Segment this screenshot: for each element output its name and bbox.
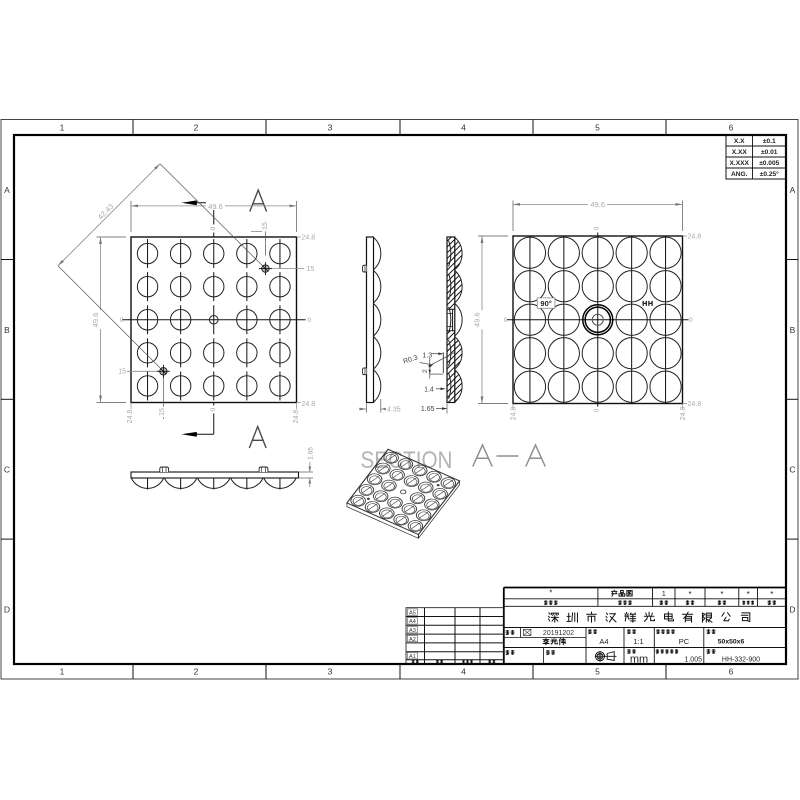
svg-text:1.4: 1.4 <box>424 386 434 393</box>
svg-text:C: C <box>4 465 10 475</box>
svg-text:6: 6 <box>729 667 734 677</box>
svg-text:5: 5 <box>595 667 600 677</box>
svg-text:±0.25°: ±0.25° <box>760 170 779 178</box>
svg-text:A: A <box>4 185 10 195</box>
svg-text:1.65: 1.65 <box>421 406 435 413</box>
svg-text:24.8: 24.8 <box>302 234 316 241</box>
svg-text:24.8: 24.8 <box>293 410 300 424</box>
svg-text:A: A <box>790 185 796 195</box>
svg-text:A3: A3 <box>409 628 416 634</box>
svg-text:49.6: 49.6 <box>208 202 223 211</box>
svg-text:4: 4 <box>461 667 466 677</box>
svg-text:3: 3 <box>328 667 333 677</box>
svg-text:0: 0 <box>120 317 124 324</box>
svg-text:0: 0 <box>504 317 508 324</box>
svg-text:1: 1 <box>60 667 65 677</box>
svg-text:D: D <box>4 604 10 614</box>
svg-text:15: 15 <box>307 266 315 273</box>
svg-text:2: 2 <box>422 369 429 373</box>
svg-text:mm: mm <box>630 654 648 666</box>
svg-text:4: 4 <box>461 123 466 133</box>
svg-text:1: 1 <box>662 591 666 598</box>
svg-text:15: 15 <box>262 222 269 230</box>
svg-text:0: 0 <box>210 407 217 411</box>
svg-text:SECTION: SECTION <box>361 447 453 474</box>
svg-text:*: * <box>549 589 552 598</box>
svg-text:15: 15 <box>159 408 166 416</box>
svg-text:A5: A5 <box>409 610 416 616</box>
svg-text:±0.01: ±0.01 <box>761 149 778 156</box>
svg-text:B: B <box>4 325 10 335</box>
svg-text:±0.1: ±0.1 <box>763 138 776 145</box>
svg-text:20191202: 20191202 <box>543 630 574 637</box>
svg-text:15: 15 <box>118 369 126 376</box>
svg-text:PC: PC <box>679 637 690 646</box>
svg-text:49.6: 49.6 <box>473 312 482 327</box>
svg-text:24.8: 24.8 <box>688 401 702 408</box>
svg-text:*: * <box>747 590 750 599</box>
svg-text:0: 0 <box>594 226 601 230</box>
svg-text:49.6: 49.6 <box>590 200 605 209</box>
svg-text:0: 0 <box>594 408 601 412</box>
svg-text:A4: A4 <box>599 637 608 646</box>
svg-text:HH-332-900: HH-332-900 <box>722 656 760 663</box>
svg-text:0: 0 <box>689 317 693 324</box>
svg-text:4.35: 4.35 <box>387 407 401 414</box>
svg-text:A2: A2 <box>409 637 416 643</box>
svg-text:24.8: 24.8 <box>688 233 702 240</box>
svg-text:*: * <box>720 590 723 599</box>
svg-text:X.XX: X.XX <box>732 149 748 156</box>
svg-text:5: 5 <box>595 123 600 133</box>
svg-text:2: 2 <box>194 667 199 677</box>
svg-text:6: 6 <box>729 123 734 133</box>
svg-text:0: 0 <box>210 226 217 230</box>
svg-text:24.8: 24.8 <box>302 401 316 408</box>
svg-text:24.8: 24.8 <box>511 407 518 421</box>
svg-text:0: 0 <box>308 317 312 324</box>
svg-text:A1: A1 <box>409 654 416 660</box>
svg-text:50x50x6: 50x50x6 <box>718 639 745 646</box>
svg-text:C: C <box>789 465 795 475</box>
svg-text:B: B <box>790 325 796 335</box>
svg-text:24.8: 24.8 <box>127 410 134 424</box>
svg-text:1.005: 1.005 <box>684 656 702 663</box>
svg-text:±0.005: ±0.005 <box>759 160 779 167</box>
svg-text:*: * <box>770 590 773 599</box>
svg-text:49.6: 49.6 <box>91 313 100 328</box>
svg-text:D: D <box>789 604 795 614</box>
svg-text:90°: 90° <box>540 299 551 308</box>
svg-text:24.8: 24.8 <box>680 407 687 421</box>
svg-text:2: 2 <box>194 123 199 133</box>
svg-text:3: 3 <box>328 123 333 133</box>
svg-text:1.3: 1.3 <box>422 352 432 359</box>
svg-text:A4: A4 <box>409 619 416 625</box>
svg-text:1.65: 1.65 <box>307 447 314 460</box>
svg-text:X.X: X.X <box>734 138 745 145</box>
svg-text:*: * <box>688 590 691 599</box>
svg-text:1:1: 1:1 <box>633 637 643 646</box>
svg-text:ANG.: ANG. <box>731 171 748 178</box>
svg-text:X.XXX: X.XXX <box>730 160 750 167</box>
svg-text:1: 1 <box>60 123 65 133</box>
